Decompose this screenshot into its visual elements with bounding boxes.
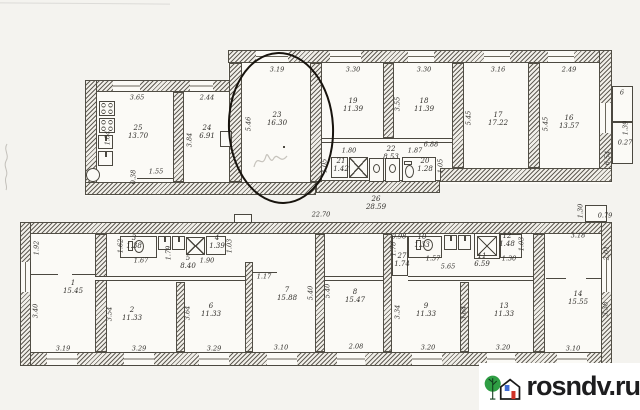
wall [528,63,540,168]
dim-label: 1.57 [426,255,440,262]
room-21-label: 211.42 [333,158,349,174]
dim-label: 0.38 [130,170,137,184]
dim-label: 1.30 [502,255,516,262]
window [330,50,361,63]
room-7-label: 715.88 [277,287,297,303]
corridor-wall [408,276,533,281]
dim-label: 1.03 [226,239,233,253]
wall [95,234,107,352]
room-24-label: 246.91 [199,125,215,141]
wall [533,234,545,352]
room-4-label: 41.39 [209,235,225,251]
dim-label: 1.67 [134,257,148,264]
room-17-label: 1717.22 [488,112,508,128]
sink-icon [458,235,471,250]
dim-label: 1.03 [518,237,525,251]
dim-label: 3.34 [394,305,401,319]
dim-label: 1.30 [577,204,584,218]
room-2-label: 211.33 [122,307,142,323]
wall [383,63,394,138]
dim-label: 1.78 [390,242,397,256]
room-14-label: 1415.55 [568,291,588,307]
window [412,352,442,366]
wall [20,222,612,234]
dim-label: 1.04 [104,131,111,145]
room-25-label: 2513.70 [128,125,148,141]
window [47,352,77,366]
dim-label: 3.18 [571,232,585,239]
dim-label: 5.45 [542,117,549,131]
dim-label: 0.79 [598,212,612,219]
wall [601,222,612,366]
stove-icon [99,101,115,116]
dim-label: 1.92 [33,241,40,255]
wall [20,222,31,366]
toilet-icon [405,165,414,178]
wall [173,92,184,182]
dim-label: 5.45 [465,111,472,125]
dim-label: 3.64 [460,306,467,320]
dim-label: 3.64 [184,306,191,320]
room-20-label: 201.28 [417,158,433,174]
dim-label: 1.39 [622,121,629,135]
sink-icon [444,235,457,250]
dim-label: 5.40 [324,284,331,298]
window [20,262,31,292]
sink-icon [172,236,185,250]
room-19-label: 1911.39 [343,98,363,114]
room-5-label: 58.40 [180,255,196,271]
dim-label: 2.08 [349,343,363,350]
dim-label: 3.40 [32,304,39,318]
dim-label: 3.84 [186,133,193,147]
dim-label: 3.19 [56,345,70,352]
shaft-x-icon [186,237,205,255]
wall [245,262,253,352]
window [484,50,510,63]
toilet-icon [389,164,396,173]
toilet-icon [373,164,380,173]
dim-label: 3.10 [274,344,288,351]
dim-label: 5.65 [441,263,455,270]
dim-label: 3.29 [132,345,146,352]
room-16-label: 1613.57 [559,115,579,131]
floor-plan-scan: rosndv.ru 2513.70246.912316.301911.39181… [0,0,640,410]
rosndv-logo-icon [484,367,521,407]
alcove-line [586,278,601,279]
handwritten-note [1,142,13,192]
window [190,80,213,92]
room-12-label: 121.48 [499,233,515,249]
floor-step-line [137,178,173,179]
alcove-line [31,274,58,275]
room-18-label: 1811.39 [414,98,434,114]
sink-icon [98,151,113,166]
room-23-label: 2316.30 [267,112,287,128]
dim-label: 1.55 [149,168,163,175]
corridor-wall [95,276,245,281]
window [267,352,297,366]
window [599,103,612,133]
shaft-x-icon [349,157,368,178]
dim-label: 1.80 [342,147,356,154]
room-1-label: 115.45 [63,280,83,296]
dim-label: 3.38 [602,302,609,316]
room-3-label: 31.38 [126,235,142,251]
dim-label: 1.90 [200,257,214,264]
room-9-label: 911.33 [416,303,436,319]
room-10-label: 101.33 [414,234,430,250]
alcove-line [546,278,566,279]
dim-label: 1.05 [321,159,328,173]
dim-label: 5.46 [245,117,252,131]
window [113,80,140,92]
dim-label: 1.87 [408,147,422,154]
scan-artifact-line [0,2,170,4]
dim-label: 6 [620,89,624,96]
window [124,352,154,366]
dim-label: 3.30 [417,66,431,73]
dim-label: 3.54 [106,307,113,321]
window [199,352,229,366]
dim-label: 1.79 [165,246,172,260]
dim-label: 5.40 [307,286,314,300]
dim-label: 3.19 [270,66,284,73]
wall [440,168,612,182]
watermark-site-text: rosndv.ru [526,371,640,402]
dim-label: 3.10 [566,345,580,352]
dim-label: 6.88 [424,141,438,148]
dim-label: 3.29 [207,345,221,352]
dim-label: 3.30 [346,66,360,73]
room-8-label: 815.47 [345,289,365,305]
dim-label: 6.54 [604,151,611,165]
watermark: rosndv.ru [479,363,640,410]
entry-porch [234,214,252,223]
window [337,352,365,366]
window [408,50,434,63]
dim-label: 2.49 [562,66,576,73]
dim-label: 3.55 [394,97,401,111]
dim-label: 1.05 [437,159,444,173]
room-26-label: 2628.59 [366,196,386,212]
boiler-icon [86,168,100,182]
dim-label: 1.62 [117,239,124,253]
room-11-label: 116.59 [474,253,490,269]
alcove-line [72,274,95,275]
room-13-label: 1311.33 [494,303,514,319]
room-22-label: 228.53 [383,146,399,162]
dim-label: 3.65 [130,94,144,101]
room-6-label: 611.33 [201,303,221,319]
corridor-wall [325,276,383,281]
dim-label: 0.27 [618,139,632,146]
dim-label: 3.20 [496,344,510,351]
dim-label: 1.17 [257,273,271,280]
dim-label: 0.98 [392,233,406,240]
dim-label: 2.44 [200,94,214,101]
window [548,50,574,63]
wall [452,63,464,168]
dim-label: 3.16 [491,66,505,73]
dim-label: 22.70 [312,211,331,218]
dim-label: 2.01 [603,246,610,260]
dim-label: 3.20 [421,344,435,351]
window [601,258,612,292]
